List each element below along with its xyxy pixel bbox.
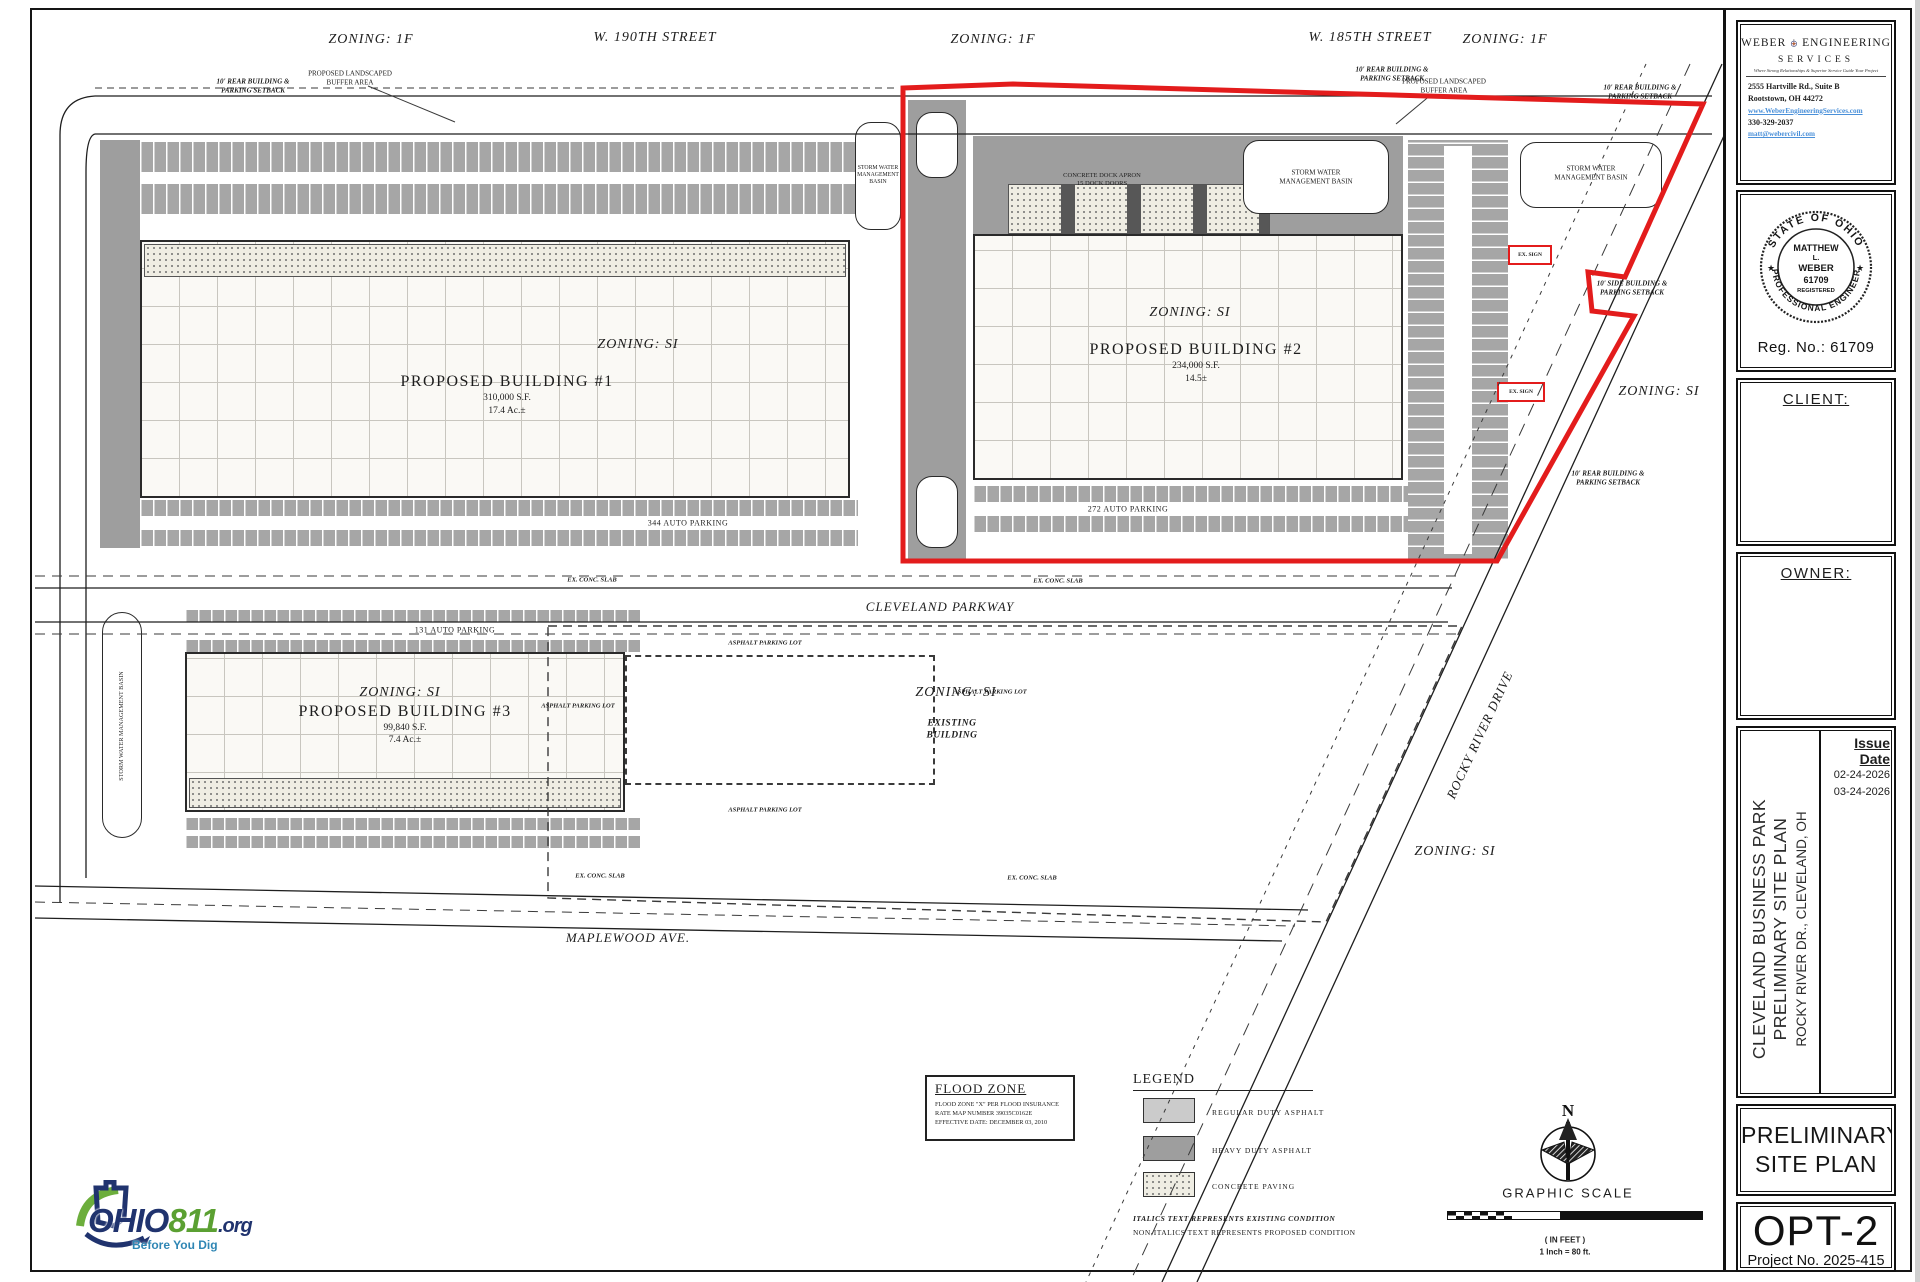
dock-apron-label: CONCRETE DOCK APRON15 DOCK DOORS bbox=[1063, 172, 1141, 188]
zoning-si-east: ZONING: SI bbox=[1618, 384, 1699, 400]
svg-text:MATTHEW: MATTHEW bbox=[1793, 243, 1839, 253]
building-2-name: PROPOSED BUILDING #2 bbox=[1089, 341, 1302, 359]
svg-text:N: N bbox=[1562, 1101, 1575, 1120]
ex-sign-label: EX. SIGN bbox=[1518, 252, 1542, 258]
existing-building-outline bbox=[625, 655, 935, 785]
firm-email-link[interactable]: matt@webercivil.com bbox=[1748, 129, 1884, 140]
building-3-acres: 7.4 Ac.± bbox=[389, 735, 421, 745]
parking-row bbox=[185, 836, 640, 848]
buffer-label: PROPOSED LANDSCAPEDBUFFER AREA bbox=[308, 69, 392, 87]
street-cleveland-parkway: CLEVELAND PARKWAY bbox=[866, 599, 1014, 615]
north-arrow-icon: N bbox=[1528, 1100, 1608, 1188]
parking-row bbox=[185, 640, 640, 652]
ex-sign-box: EX. SIGN bbox=[1508, 245, 1552, 265]
issue-date-values: 02-24-2026 03-24-2026 bbox=[1821, 767, 1892, 800]
building-3-zoning: ZONING: SI bbox=[359, 685, 440, 701]
existing-building-label: EXISTINGBUILDING bbox=[927, 718, 978, 743]
building-1 bbox=[140, 240, 850, 498]
legend-note-italics: ITALICS TEXT REPRESENTS EXISTING CONDITI… bbox=[1133, 1214, 1335, 1223]
zoning-si-southeast: ZONING: SI bbox=[1414, 844, 1495, 860]
setback-label: 10' REAR BUILDING &PARKING SETBACK bbox=[1604, 83, 1677, 101]
asphalt-lot-label: ASPHALT PARKING LOT bbox=[728, 807, 801, 814]
asphalt-lot-label: ASPHALT PARKING LOT bbox=[728, 640, 801, 647]
flood-zone-box: FLOOD ZONE FLOOD ZONE "X" PER FLOOD INSU… bbox=[925, 1075, 1075, 1141]
owner-box: OWNER: bbox=[1736, 552, 1896, 720]
island bbox=[916, 476, 958, 548]
legend: LEGEND bbox=[1133, 1072, 1473, 1091]
scale-in-feet: ( IN FEET ) bbox=[1545, 1236, 1585, 1245]
svg-text:★: ★ bbox=[1767, 263, 1775, 273]
site-plan-sheet: EX. SIGN EX. SIGN bbox=[0, 0, 1920, 1282]
svg-text:L.: L. bbox=[1813, 253, 1820, 262]
ex-conc-slab-label: EX. CONC. SLAB bbox=[567, 577, 617, 584]
flood-zone-text: FLOOD ZONE "X" PER FLOOD INSURANCE RATE … bbox=[935, 1100, 1065, 1127]
storm-basin-label: STORM WATERMANAGEMENTBASIN bbox=[857, 165, 899, 187]
scale-bar-segment bbox=[1560, 1212, 1702, 1219]
ex-sign-box: EX. SIGN bbox=[1497, 382, 1545, 402]
firm-website-link[interactable]: www.WeberEngineeringServices.com bbox=[1748, 106, 1884, 117]
parking-count-131: 131 AUTO PARKING bbox=[415, 626, 495, 635]
storm-basin-label: STORM WATERMANAGEMENT BASIN bbox=[1554, 164, 1627, 182]
island bbox=[916, 112, 958, 178]
setback-label: 10' REAR BUILDING &PARKING SETBACK bbox=[1356, 65, 1429, 83]
ex-conc-slab-label: EX. CONC. SLAB bbox=[1033, 578, 1083, 585]
building-1-dock-apron bbox=[144, 244, 846, 277]
setback-label: 10' REAR BUILDING &PARKING SETBACK bbox=[1572, 469, 1645, 487]
legend-label: REGULAR DUTY ASPHALT bbox=[1212, 1108, 1324, 1117]
firm-name: WEBER ENGINEERING bbox=[1741, 33, 1891, 53]
owner-label: OWNER: bbox=[1741, 565, 1891, 582]
legend-swatch-concrete bbox=[1143, 1172, 1195, 1197]
sheet-title: PRELIMINARY SITE PLAN bbox=[1741, 1121, 1891, 1179]
street-w190: W. 190TH STREET bbox=[593, 30, 716, 46]
project-number: Project No. 2025-415 bbox=[1741, 1253, 1891, 1268]
street-w185: W. 185TH STREET bbox=[1308, 30, 1431, 46]
flood-zone-title: FLOOD ZONE bbox=[935, 1081, 1065, 1097]
legend-label: HEAVY DUTY ASPHALT bbox=[1212, 1146, 1312, 1155]
street-maplewood: MAPLEWOOD AVE. bbox=[566, 930, 690, 946]
graphic-scale-title: GRAPHIC SCALE bbox=[1502, 1186, 1633, 1201]
issue-date-panel: Issue Date 02-24-2026 03-24-2026 bbox=[1821, 731, 1892, 800]
setback-label: 10' SIDE BUILDING &PARKING SETBACK bbox=[1597, 279, 1668, 297]
title-block: WEBER ENGINEERING SERVICES Where Strong … bbox=[1723, 10, 1908, 1270]
building-3-name: PROPOSED BUILDING #3 bbox=[298, 703, 511, 721]
legend-swatch-heavy bbox=[1143, 1136, 1195, 1161]
parking-count-272: 272 AUTO PARKING bbox=[1088, 505, 1168, 514]
scale-ratio: 1 Inch = 80 ft. bbox=[1540, 1248, 1591, 1257]
firm-services: SERVICES bbox=[1741, 55, 1891, 65]
sheet-title-box: PRELIMINARY SITE PLAN bbox=[1736, 1104, 1896, 1196]
parking-row bbox=[140, 530, 858, 546]
svg-text:REGISTERED: REGISTERED bbox=[1797, 288, 1835, 294]
scale-bar bbox=[1447, 1211, 1703, 1220]
zoning-1f-label: ZONING: 1F bbox=[328, 32, 413, 48]
building-3-area: 99,840 S.F. bbox=[383, 723, 426, 733]
pe-seal-icon: STATE OF OHIO PROFESSIONAL ENGINEER ★ ★ … bbox=[1741, 199, 1891, 339]
issue-date-label: Issue Date bbox=[1821, 731, 1892, 767]
ex-conc-slab-label: EX. CONC. SLAB bbox=[1007, 875, 1057, 882]
client-box: CLIENT: bbox=[1736, 378, 1896, 546]
firm-tagline: Where Strong Relationships & Superior Se… bbox=[1746, 68, 1886, 77]
building-2-area: 234,000 S.F. bbox=[1172, 361, 1220, 371]
building-1-name: PROPOSED BUILDING #1 bbox=[400, 373, 613, 391]
concrete-dock-apron bbox=[1008, 184, 1270, 234]
storm-basin-label: STORM WATER MANAGEMENT BASIN bbox=[118, 671, 126, 781]
building-2-acres: 14.5± bbox=[1185, 374, 1207, 384]
building-3-dock-apron bbox=[189, 778, 621, 808]
building-1-area: 310,000 S.F. bbox=[483, 393, 531, 403]
reg-number: Reg. No.: 61709 bbox=[1741, 339, 1891, 356]
building-1-zoning: ZONING: SI bbox=[597, 337, 678, 353]
svg-text:WEBER: WEBER bbox=[1798, 263, 1834, 274]
seal-box: STATE OF OHIO PROFESSIONAL ENGINEER ★ ★ … bbox=[1736, 190, 1896, 372]
parking-aisle bbox=[1444, 146, 1472, 554]
parking-row bbox=[185, 610, 640, 622]
client-label: CLIENT: bbox=[1741, 391, 1891, 408]
building-2-zoning: ZONING: SI bbox=[1149, 305, 1230, 321]
page-edge-shadow bbox=[1915, 0, 1920, 1282]
option-label: OPT-2 bbox=[1741, 1207, 1891, 1255]
ohio811-logo: OHIO811.org Before You Dig bbox=[66, 1180, 256, 1260]
option-box: OPT-2 Project No. 2025-415 bbox=[1736, 1202, 1896, 1272]
parking-count-344: 344 AUTO PARKING bbox=[648, 519, 728, 528]
zoning-1f-label: ZONING: 1F bbox=[1462, 32, 1547, 48]
svg-text:61709: 61709 bbox=[1803, 275, 1828, 285]
legend-label: CONCRETE PAVING bbox=[1212, 1182, 1295, 1191]
building-1-acres: 17.4 Ac.± bbox=[488, 406, 525, 416]
legend-swatch-regular bbox=[1143, 1098, 1195, 1123]
project-box: CLEVELAND BUSINESS PARK PRELIMINARY SITE… bbox=[1736, 726, 1896, 1098]
zoning-1f-label: ZONING: 1F bbox=[950, 32, 1035, 48]
svg-text:★: ★ bbox=[1856, 263, 1864, 273]
ex-conc-slab-label: EX. CONC. SLAB bbox=[575, 873, 625, 880]
parking-row bbox=[140, 500, 858, 516]
firm-address: 2555 Hartville Rd., Suite B Rootstown, O… bbox=[1741, 77, 1891, 140]
driveway bbox=[100, 140, 140, 548]
asphalt-lot-label: ASPHALT PARKING LOT bbox=[541, 703, 614, 710]
ex-sign-label: EX. SIGN bbox=[1509, 389, 1533, 395]
firm-box: WEBER ENGINEERING SERVICES Where Strong … bbox=[1736, 20, 1896, 185]
parking-row bbox=[140, 184, 858, 214]
ohio811-wordmark: OHIO811.org bbox=[88, 1202, 252, 1240]
asphalt-lot-label: ASPHALT PARKING LOT bbox=[953, 689, 1026, 696]
legend-title: LEGEND bbox=[1133, 1072, 1313, 1091]
setback-label: 10' REAR BUILDING &PARKING SETBACK bbox=[217, 77, 290, 95]
legend-note-regular: NON-ITALICS TEXT REPRESENTS PROPOSED CON… bbox=[1133, 1228, 1356, 1237]
project-title-vertical: CLEVELAND BUSINESS PARK PRELIMINARY SITE… bbox=[1749, 749, 1809, 1094]
storm-basin-label: STORM WATERMANAGEMENT BASIN bbox=[1279, 168, 1352, 186]
scale-bar-checker bbox=[1448, 1212, 1512, 1219]
scale-bar-segment bbox=[1512, 1212, 1560, 1219]
parking-row bbox=[185, 818, 640, 830]
parking-row bbox=[140, 142, 858, 172]
compass-logo-icon bbox=[1790, 33, 1798, 53]
ohio811-tagline: Before You Dig bbox=[132, 1238, 218, 1252]
